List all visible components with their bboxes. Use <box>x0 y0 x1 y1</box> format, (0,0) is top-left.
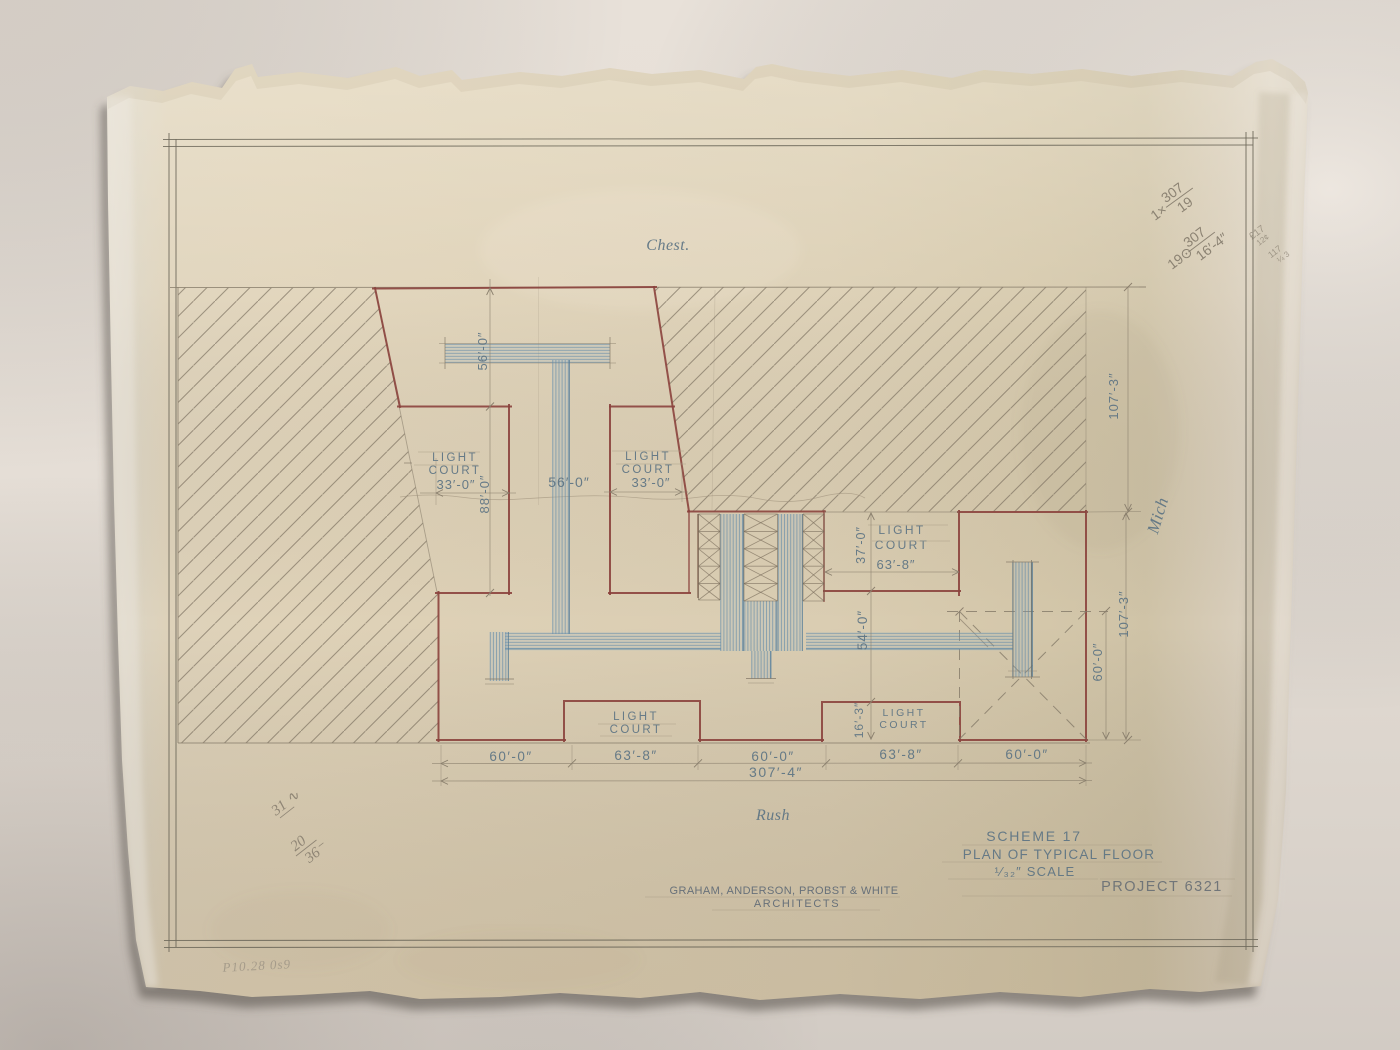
svg-text:63′-8″: 63′-8″ <box>876 557 915 572</box>
svg-text:PLAN OF TYPICAL FLOOR: PLAN OF TYPICAL FLOOR <box>963 847 1156 862</box>
svg-text:63′-8″: 63′-8″ <box>879 747 922 762</box>
svg-text:COURT: COURT <box>429 465 482 477</box>
svg-text:88′-0″: 88′-0″ <box>477 474 492 513</box>
svg-text:56′-0″: 56′-0″ <box>475 331 490 370</box>
svg-text:LIGHT: LIGHT <box>883 707 926 719</box>
svg-text:60′-0″: 60′-0″ <box>489 749 532 764</box>
svg-text:60′-0″: 60′-0″ <box>751 749 794 764</box>
svg-text:LIGHT: LIGHT <box>432 452 478 464</box>
svg-text:Rush: Rush <box>755 807 790 824</box>
svg-text:37′-0″: 37′-0″ <box>854 526 868 564</box>
svg-text:ARCHITECTS: ARCHITECTS <box>754 898 840 910</box>
svg-text:63′-8″: 63′-8″ <box>614 748 657 763</box>
svg-text:LIGHT: LIGHT <box>613 711 659 723</box>
svg-text:54′-0″: 54′-0″ <box>855 610 870 650</box>
svg-text:16′-3″: 16′-3″ <box>852 702 866 739</box>
svg-text:COURT: COURT <box>879 719 928 731</box>
svg-text:SCHEME 17: SCHEME 17 <box>986 828 1082 844</box>
svg-text:107′-3″: 107′-3″ <box>1116 590 1131 637</box>
svg-text:33′-0″: 33′-0″ <box>436 477 475 492</box>
svg-text:60′-0″: 60′-0″ <box>1090 642 1105 681</box>
svg-text:COURT: COURT <box>610 724 663 736</box>
svg-text:Chest.: Chest. <box>646 237 689 254</box>
svg-text:¹⁄₃₂″ SCALE: ¹⁄₃₂″ SCALE <box>995 864 1076 879</box>
svg-text:COURT: COURT <box>622 464 675 476</box>
svg-text:60′-0″: 60′-0″ <box>1005 747 1048 762</box>
svg-text:PROJECT 6321: PROJECT 6321 <box>1101 879 1223 895</box>
svg-text:307′-4″: 307′-4″ <box>749 764 803 780</box>
svg-text:COURT: COURT <box>875 538 929 552</box>
svg-text:107′-3″: 107′-3″ <box>1106 372 1121 419</box>
svg-text:GRAHAM, ANDERSON, PROBST & WHI: GRAHAM, ANDERSON, PROBST & WHITE <box>670 885 899 897</box>
svg-text:LIGHT: LIGHT <box>625 451 671 463</box>
svg-text:33′-0″: 33′-0″ <box>631 475 670 490</box>
svg-text:56′-0″: 56′-0″ <box>548 474 590 490</box>
